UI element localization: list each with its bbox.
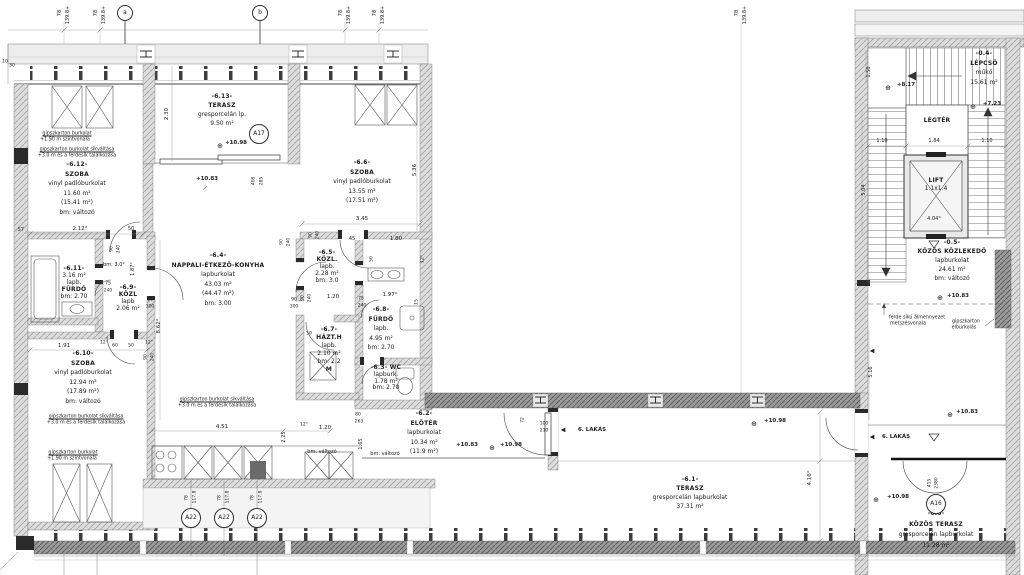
room-label-line: 13.55 m² bbox=[333, 187, 390, 197]
room-label-line: bm: 2.70 bbox=[61, 293, 88, 300]
room-label-line: SZOBA bbox=[333, 168, 390, 178]
level-value: +7.23 bbox=[983, 101, 1001, 107]
level-marker: ⊕ bbox=[489, 444, 495, 452]
room-label-line: vinyl padlóburkolat bbox=[54, 368, 111, 378]
room-label-line: HÁZT.H bbox=[316, 334, 342, 342]
dimension-label: 210 bbox=[540, 429, 549, 434]
room-label-furdo-6-8: -6.8-FÜRDŐlapb.4.95 m²bm: 2.70 bbox=[368, 305, 395, 353]
level-value: +10.98 bbox=[764, 418, 786, 424]
room-label-line: gresporcelán lapburkolat bbox=[653, 493, 728, 502]
dimension-label: 240 bbox=[287, 238, 292, 247]
dimension-label: 240 bbox=[151, 353, 156, 362]
level-value: +10.83 bbox=[196, 176, 218, 182]
dimension-label: elburkolás bbox=[952, 326, 977, 331]
room-label-legter: LÉGTÉR bbox=[924, 117, 951, 125]
dimension-label: 12° bbox=[145, 341, 153, 346]
dimension-label: 1.10 bbox=[981, 138, 992, 144]
room-label-line: FÜRDŐ bbox=[368, 315, 395, 325]
room-label-line: bm: 2.2 bbox=[316, 358, 342, 366]
dimension-label: 100 bbox=[540, 422, 549, 427]
dimension-label: 75 bbox=[105, 282, 111, 287]
room-label-line: 15.61 m² bbox=[970, 78, 997, 88]
dimension-label: 1.80 bbox=[390, 236, 402, 242]
room-label-kozl-6-5: -6.5-KÖZL.lapb.2.28 m²bm: 3.0 bbox=[315, 249, 339, 284]
dimension-label: 80 bbox=[355, 413, 361, 418]
room-label-line: (17.51 m²) bbox=[333, 196, 390, 206]
direction-arrow: ◀ bbox=[870, 348, 875, 355]
dimension-label: bm: 3.0° bbox=[103, 262, 125, 268]
room-label-line: lapburkolat bbox=[407, 428, 441, 438]
room-label-line: LÉPCSŐ bbox=[970, 59, 997, 69]
room-label-line: 9.50 m² bbox=[198, 119, 246, 128]
room-label-line: SZOBA bbox=[54, 359, 111, 369]
dimension-label: +3.0 m és a ferdesík találkozása bbox=[47, 421, 125, 426]
room-label-line: lapb. bbox=[316, 342, 342, 350]
dimension-label: 90 bbox=[309, 232, 314, 238]
dimension-label: 1.87° bbox=[130, 262, 136, 276]
room-label-line: -6.6- bbox=[333, 158, 390, 168]
dimension-label: 60 bbox=[112, 344, 118, 349]
room-label-szoba-6-10: -6.10-SZOBAvinyl padlóburkolat12.94 m²(1… bbox=[54, 349, 111, 406]
dimension-label: 240 bbox=[117, 245, 122, 254]
dimension-label: 240 bbox=[104, 289, 113, 294]
dimension-label: 1.84 bbox=[928, 138, 939, 144]
room-label-szoba-6-6: -6.6-SZOBAvinyl padlóburkolat13.55 m²(17… bbox=[333, 158, 390, 206]
dimension-label: 139.8+ bbox=[380, 6, 386, 25]
dimension-label: 12° bbox=[300, 423, 308, 428]
room-label-line: bm: 3.0 bbox=[315, 277, 339, 284]
room-label-line: 2.28 m² bbox=[315, 270, 339, 277]
dimension-label: 90 bbox=[291, 298, 297, 303]
dimension-label: 78 bbox=[185, 495, 190, 501]
dimension-label: 2.12° bbox=[73, 226, 88, 232]
room-label-line: KÖZL bbox=[116, 291, 140, 298]
dimension-label: 4.04° bbox=[927, 216, 941, 222]
apartment-arrow: ◀ bbox=[870, 434, 875, 441]
level-marker: ⊕ bbox=[885, 84, 891, 92]
dimension-label: 72 bbox=[521, 417, 526, 423]
dimension-label: 90 bbox=[144, 354, 149, 360]
dimension-label: 300 bbox=[146, 305, 155, 310]
dimension-label: 4.51 bbox=[216, 424, 228, 430]
dimension-label: 1.10 bbox=[876, 138, 887, 144]
marker-A17: A17 bbox=[249, 124, 269, 144]
room-label-line: LÉGTÉR bbox=[924, 117, 951, 125]
room-label-line: -6.4- bbox=[172, 251, 265, 261]
room-label-line: -0.5- bbox=[918, 238, 987, 247]
room-label-terasz-6-13: -6.13-TERASZgresporcelán lp.9.50 m² bbox=[198, 92, 246, 128]
apartment-arrow: ◀ bbox=[561, 427, 566, 434]
marker-A22: A22 bbox=[214, 508, 234, 528]
room-label-line: lapb. bbox=[61, 279, 88, 286]
dimension-label: 50 bbox=[128, 226, 134, 232]
dimension-label: 1.65 bbox=[358, 438, 364, 449]
room-label-line: lapburkolat bbox=[172, 270, 265, 280]
room-label-line: lapb bbox=[116, 298, 140, 305]
dimension-label: 90 bbox=[280, 239, 285, 245]
dimension-label: 50 bbox=[128, 344, 134, 349]
room-label-line: gresporcelán lp. bbox=[198, 110, 246, 119]
dimension-label: 30 bbox=[9, 64, 15, 69]
dimension-label: 75 bbox=[358, 297, 364, 302]
floor-plan-page: -6.13-TERASZgresporcelán lp.9.50 m²-6.12… bbox=[0, 0, 1024, 575]
level-marker: ⊕ bbox=[751, 420, 757, 428]
dimension-label: 1.50 bbox=[866, 66, 872, 77]
room-label-line: -6.9- bbox=[116, 284, 140, 291]
room-label-line: TERASZ bbox=[198, 101, 246, 110]
room-label-terasz-6-1: -6.1-TERASZgresporcelán lapburkolat37.31… bbox=[653, 475, 728, 511]
room-label-szoba-6-12: -6.12-SZOBAvinyl padlóburkolat11.60 m²(1… bbox=[48, 160, 105, 217]
dimension-label: 1.97° bbox=[383, 292, 398, 298]
room-label-line: SZOBA bbox=[48, 170, 105, 180]
room-label-line: vinyl padlóburkolat bbox=[333, 177, 390, 187]
dimension-label: 139.8+ bbox=[346, 6, 352, 25]
room-label-line: bm: 2.70 bbox=[368, 343, 395, 353]
room-label-line: (15.41 m²) bbox=[48, 198, 105, 208]
level-value: +10.98 bbox=[225, 140, 247, 146]
room-label-line: 11.28 m² bbox=[899, 541, 974, 552]
marker-A22: A22 bbox=[181, 508, 201, 528]
room-label-line: lapburkolat bbox=[918, 256, 987, 265]
apartment-label: 6. LAKÁS bbox=[882, 434, 910, 440]
dimension-label: gipszkarton burkolat bbox=[48, 451, 97, 456]
room-label-line: -6.1- bbox=[653, 475, 728, 484]
dimension-label: gipszkarton burkolat bbox=[42, 132, 91, 137]
room-label-line: LIFT bbox=[925, 177, 948, 185]
room-label-line: NAPPALI-ÉTKEZŐ-KONYHA bbox=[172, 261, 265, 271]
dimension-label: 415 bbox=[928, 479, 933, 488]
dimension-label: 408 bbox=[252, 177, 257, 186]
dimension-label: 2.30 bbox=[164, 108, 170, 120]
dimension-label: ferde síkú álmennyezet bbox=[889, 316, 945, 321]
room-label-line: -0.4- bbox=[970, 49, 997, 59]
dimension-label: metszésvonala bbox=[890, 322, 926, 327]
dimension-label: +3.0 m és a ferdesík találkozása bbox=[178, 404, 256, 409]
level-marker: ⊕ bbox=[947, 411, 953, 419]
dimension-label: 90 bbox=[301, 295, 306, 301]
dimension-label: +1.90 m szintvonala bbox=[47, 457, 97, 462]
room-label-line: 3.16 m² bbox=[61, 272, 88, 279]
room-label-line: FÜRDŐ bbox=[61, 286, 88, 293]
room-label-line: bm: 3.00 bbox=[172, 299, 265, 309]
level-marker: ⊕ bbox=[970, 103, 976, 111]
room-label-line: KÖZÖS TERASZ bbox=[899, 520, 974, 531]
dimension-label: 45 bbox=[349, 236, 355, 242]
room-label-line: 11.60 m² bbox=[48, 189, 105, 199]
room-label-lepcso-0-4: -0.4-LÉPCSŐműkő15.61 m² bbox=[970, 49, 997, 87]
room-label-line: -6.10- bbox=[54, 349, 111, 359]
dimension-label: 5.36 bbox=[412, 164, 418, 176]
dimension-label: 3.45 bbox=[356, 216, 368, 222]
dimension-label: 10 bbox=[2, 60, 8, 65]
dimension-label: 12° bbox=[421, 255, 426, 263]
room-label-line: 2.10 m² bbox=[316, 350, 342, 358]
room-label-hazt-6-7: -6.7-HÁZT.Hlapb.2.10 m²bm: 2.2M bbox=[316, 326, 342, 374]
room-label-nappali-6-4: -6.4-NAPPALI-ÉTKEZŐ-KONYHAlapburkolat43.… bbox=[172, 251, 265, 308]
dimension-label: 1.20 bbox=[327, 294, 339, 300]
marker-a: a bbox=[117, 5, 133, 21]
room-label-kozos-kozlekedo-0-5: -0.5-KÖZÖS KÖZLEKEDŐlapburkolat24.61 m²b… bbox=[918, 238, 987, 283]
dimension-label: +3.0 m és a ferdesík találkozása bbox=[38, 154, 116, 159]
dimension-label: 78 bbox=[218, 495, 223, 501]
level-value: +8.17 bbox=[897, 82, 915, 88]
room-label-line: KÖZÖS KÖZLEKEDŐ bbox=[918, 247, 987, 256]
room-label-line: 37.31 m² bbox=[653, 502, 728, 511]
level-value: +10.83 bbox=[947, 293, 969, 299]
level-value: +10.83 bbox=[456, 442, 478, 448]
dimension-label: gipszkarton burkolat síkváltása bbox=[40, 148, 115, 153]
room-label-line: 24.61 m² bbox=[918, 265, 987, 274]
dimension-label: .57 bbox=[16, 227, 24, 233]
room-label-line: lapb. bbox=[368, 324, 395, 334]
level-value: +10.98 bbox=[500, 442, 522, 448]
dimension-label: 139.8+ bbox=[101, 6, 107, 25]
dimension-label: 78 bbox=[57, 10, 63, 16]
dimension-label: bm: változó bbox=[370, 451, 399, 457]
level-value: +10.83 bbox=[956, 409, 978, 415]
dimension-label: 4.16° bbox=[807, 471, 813, 486]
dimension-label: 90 bbox=[110, 246, 115, 252]
room-label-lift: LIFT1.1x1.4 bbox=[925, 177, 948, 192]
dimension-label: 50 bbox=[370, 256, 375, 262]
room-label-line: -6.13- bbox=[198, 92, 246, 101]
room-label-line: 12.94 m² bbox=[54, 378, 111, 388]
level-value: +10.98 bbox=[887, 494, 909, 500]
level-marker: ⊕ bbox=[873, 496, 879, 504]
dimension-label: 2380 bbox=[935, 477, 940, 488]
room-label-line: 1.1x1.4 bbox=[925, 185, 948, 193]
dimension-label: 117.8 bbox=[259, 491, 264, 504]
dimension-label: 1.20 bbox=[319, 425, 331, 431]
dimension-label: 1.91 bbox=[58, 343, 70, 349]
marker-b: b bbox=[252, 5, 268, 21]
dimension-label: 139.8+ bbox=[742, 6, 748, 25]
room-label-line: -6.11- bbox=[61, 265, 88, 272]
room-label-line: vinyl padlóburkolat bbox=[48, 179, 105, 189]
room-label-line: M bbox=[316, 366, 342, 374]
room-label-line: 2.06 m² bbox=[116, 305, 140, 312]
dimension-label: 90 bbox=[147, 298, 153, 303]
room-label-kozos-terasz-0-6: -0.6-KÖZÖS TERASZgresporcelán lapburkola… bbox=[899, 509, 974, 551]
dimension-label: 139.8+ bbox=[65, 6, 71, 25]
room-label-line: -6.2- bbox=[407, 409, 441, 419]
room-label-line: (17.89 m²) bbox=[54, 387, 111, 397]
room-label-line: (11.9 m²) bbox=[407, 447, 441, 457]
marker-A16: A16 bbox=[926, 494, 946, 514]
dimension-label: 78 bbox=[93, 10, 99, 16]
room-label-line: TERASZ bbox=[653, 484, 728, 493]
room-label-line: -6.5- bbox=[315, 249, 339, 256]
dimension-label: 117.8 bbox=[193, 491, 198, 504]
dimension-label: 78 bbox=[372, 10, 378, 16]
room-label-line: 43.03 m² bbox=[172, 280, 265, 290]
dimension-label: 240 bbox=[316, 231, 321, 240]
dimension-label: 263 bbox=[355, 420, 364, 425]
room-label-line: ELŐTÉR bbox=[407, 419, 441, 429]
dimension-label: 5.16 bbox=[868, 366, 874, 377]
level-marker: ⊕ bbox=[217, 142, 223, 150]
dimension-label: 78 bbox=[251, 495, 256, 501]
room-label-line: -6.12- bbox=[48, 160, 105, 170]
dimension-label: bm: változó bbox=[307, 449, 336, 455]
dimension-label: gipszkarton bbox=[952, 320, 980, 325]
dimension-label: 2.25 bbox=[281, 431, 287, 442]
dimension-label: +1.90 m szintvonala bbox=[40, 138, 90, 143]
marker-A22: A22 bbox=[247, 508, 267, 528]
dimension-label: 78 bbox=[338, 10, 344, 16]
dimension-label: 5.04 bbox=[861, 184, 867, 195]
dimension-label: 50 bbox=[306, 332, 312, 337]
dimension-label: gipszkarton burkolat síkváltása bbox=[49, 415, 124, 420]
dimension-label: 240 bbox=[308, 294, 313, 303]
room-label-line: bm: változó bbox=[48, 208, 105, 218]
level-marker: ⊕ bbox=[937, 294, 943, 302]
room-label-line: -6.8- bbox=[368, 305, 395, 315]
room-label-line: bm: 2.70 bbox=[371, 385, 401, 392]
room-label-line: gresporcelán lapburkolat bbox=[899, 530, 974, 541]
room-label-kozl-6-9: -6.9-KÖZLlapb2.06 m² bbox=[116, 284, 140, 312]
dimension-label: 285 bbox=[260, 177, 265, 186]
room-label-furdo-6-11: -6.11-3.16 m²lapb.FÜRDŐbm: 2.70 bbox=[61, 265, 88, 300]
dimension-label: 117.8 bbox=[226, 491, 231, 504]
dimension-label: 15 bbox=[415, 299, 420, 305]
room-label-line: műkő bbox=[970, 68, 997, 78]
room-label-line: 4.95 m² bbox=[368, 334, 395, 344]
plan-labels-layer: -6.13-TERASZgresporcelán lp.9.50 m²-6.12… bbox=[0, 0, 1024, 575]
dimension-label: 78 bbox=[734, 10, 740, 16]
room-label-line: bm: változó bbox=[54, 397, 111, 407]
room-label-line: KÖZL. bbox=[315, 256, 339, 263]
room-label-line: bm: változó bbox=[918, 274, 987, 283]
room-label-line: (44.47 m²) bbox=[172, 289, 265, 299]
room-label-line: lapb. bbox=[315, 263, 339, 270]
dimension-label: 12° bbox=[100, 341, 108, 346]
dimension-label: gipszkarton burkolat síkváltása bbox=[180, 398, 255, 403]
room-label-wc-6-3: -6.3- WClapburk.1.78 m²bm: 2.70 bbox=[371, 365, 401, 392]
dimension-label: 8.62° bbox=[156, 319, 162, 334]
dimension-label: 240 bbox=[358, 304, 367, 309]
room-label-line: 10.34 m² bbox=[407, 438, 441, 448]
dimension-label: 300 bbox=[290, 305, 299, 310]
room-label-eloter-6-2: -6.2-ELŐTÉRlapburkolat10.34 m²(11.9 m²) bbox=[407, 409, 441, 457]
apartment-label: 6. LAKÁS bbox=[578, 427, 606, 433]
room-label-line: -6.7- bbox=[316, 326, 342, 334]
